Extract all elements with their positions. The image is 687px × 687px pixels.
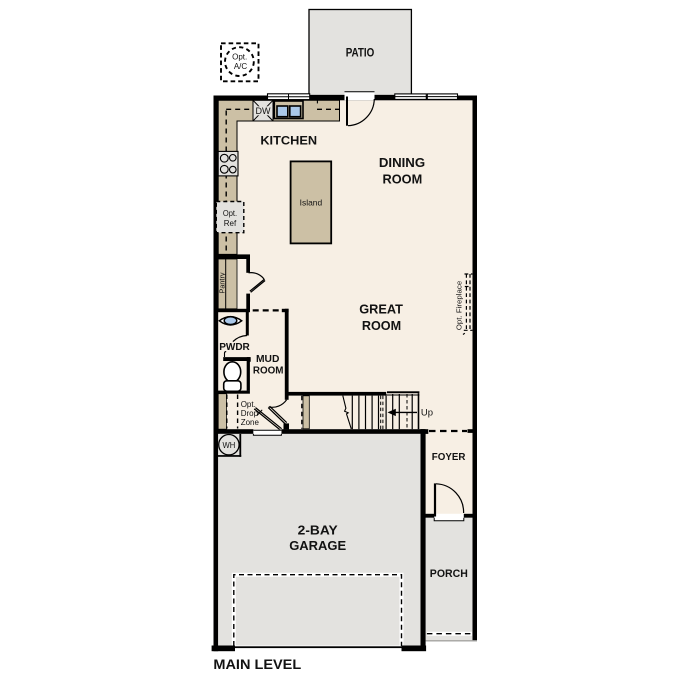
svg-text:Opt.: Opt. bbox=[241, 400, 256, 409]
svg-text:Opt. Fireplace: Opt. Fireplace bbox=[455, 281, 464, 331]
svg-text:DINING: DINING bbox=[379, 155, 425, 170]
svg-text:ROOM: ROOM bbox=[383, 172, 423, 187]
svg-text:Zone: Zone bbox=[241, 418, 260, 427]
svg-text:Island: Island bbox=[300, 197, 323, 207]
svg-text:FOYER: FOYER bbox=[432, 452, 466, 463]
svg-text:GREAT: GREAT bbox=[359, 302, 403, 317]
svg-text:MAIN LEVEL: MAIN LEVEL bbox=[213, 657, 301, 673]
svg-text:ROOM: ROOM bbox=[253, 365, 284, 376]
svg-text:WH: WH bbox=[223, 440, 236, 450]
svg-text:PWDR: PWDR bbox=[219, 342, 250, 353]
svg-text:Opt.: Opt. bbox=[232, 52, 247, 61]
svg-text:MUD: MUD bbox=[256, 354, 280, 365]
svg-text:Ref: Ref bbox=[224, 219, 237, 228]
svg-text:Pantry: Pantry bbox=[217, 272, 226, 293]
svg-text:Up: Up bbox=[421, 407, 433, 418]
svg-text:GARAGE: GARAGE bbox=[289, 538, 346, 553]
svg-text:PATIO: PATIO bbox=[346, 46, 375, 60]
svg-text:PORCH: PORCH bbox=[430, 568, 468, 580]
svg-text:KITCHEN: KITCHEN bbox=[260, 133, 317, 147]
svg-text:2-BAY: 2-BAY bbox=[298, 523, 338, 538]
svg-text:A/C: A/C bbox=[234, 62, 248, 71]
svg-text:ROOM: ROOM bbox=[362, 318, 401, 333]
svg-text:DW: DW bbox=[256, 106, 271, 116]
svg-text:Opt.: Opt. bbox=[223, 209, 237, 218]
